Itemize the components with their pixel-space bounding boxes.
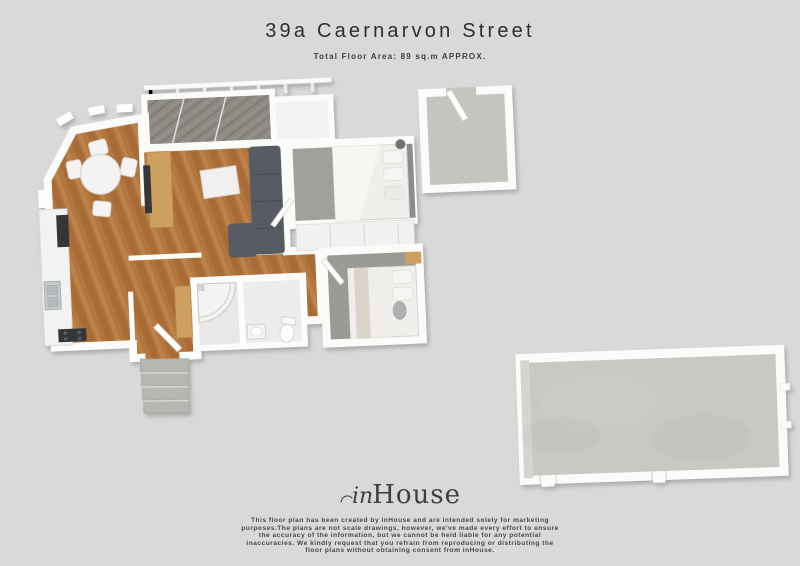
railing-post (284, 84, 288, 93)
wall-vestibule-shower (194, 283, 197, 346)
inhouse-logo: inHouse (0, 480, 800, 514)
basin-bowl (250, 327, 262, 337)
entrance-steps (140, 359, 188, 413)
disclaimer-line: the accuracy of the information, but we … (0, 532, 800, 540)
coffee-table (200, 166, 240, 199)
dining-chair (119, 157, 137, 178)
step (144, 401, 189, 413)
logo-suffix: House (372, 480, 461, 510)
garage-window-sill (781, 421, 791, 428)
store-room-floor (422, 89, 512, 189)
step (142, 373, 189, 386)
disclaimer-text: This floor plan has been created by inHo… (0, 517, 800, 555)
disclaimer-line: purposes.The plans are not scale drawing… (0, 525, 800, 533)
disclaimer-line: floor plans without obtaining consent fr… (0, 547, 800, 555)
railing-post (311, 83, 315, 92)
sink-drainer (48, 297, 58, 306)
sofa-chaise (228, 223, 257, 258)
bedroom1-bed (332, 139, 415, 221)
shower-head (198, 285, 204, 291)
bed2-pillow (392, 270, 413, 284)
disclaimer-line: This floor plan has been created by inHo… (0, 517, 800, 525)
wall-living-hall-left (131, 255, 199, 258)
side-window-sill (38, 190, 47, 208)
wall-wc-corridor (302, 279, 305, 342)
sink-bowl (47, 285, 57, 294)
garage (518, 349, 793, 487)
bed2-side-unit (405, 251, 422, 264)
step (140, 359, 188, 372)
dining-chair (92, 200, 111, 217)
disclaimer-line: inaccuracies. We kindly request that you… (0, 540, 800, 548)
floorplan-page: 39a Caernarvon Street Total Floor Area: … (0, 0, 800, 566)
bay-window-sill (56, 111, 74, 126)
hall-cupboard (174, 286, 192, 339)
kitchen-hob (58, 328, 87, 342)
kitchen-oven (56, 215, 69, 247)
step (143, 387, 189, 400)
bed1-pillow (383, 167, 404, 181)
garage-window-sill (780, 383, 790, 390)
logo-prefix: in (352, 484, 373, 509)
toilet-cistern (281, 317, 296, 326)
bed1-pillow (383, 150, 404, 164)
bed1-pillow (384, 186, 405, 200)
bay-window-sill (116, 104, 132, 113)
wall-shower-wc (240, 281, 243, 344)
wall-kitchen-vestibule (131, 294, 134, 356)
railing-top-rail (144, 77, 332, 90)
flat-roof (272, 97, 332, 142)
bed2-pillow (393, 287, 414, 301)
bay-window-sill (88, 105, 105, 116)
main-dwelling (34, 69, 522, 418)
